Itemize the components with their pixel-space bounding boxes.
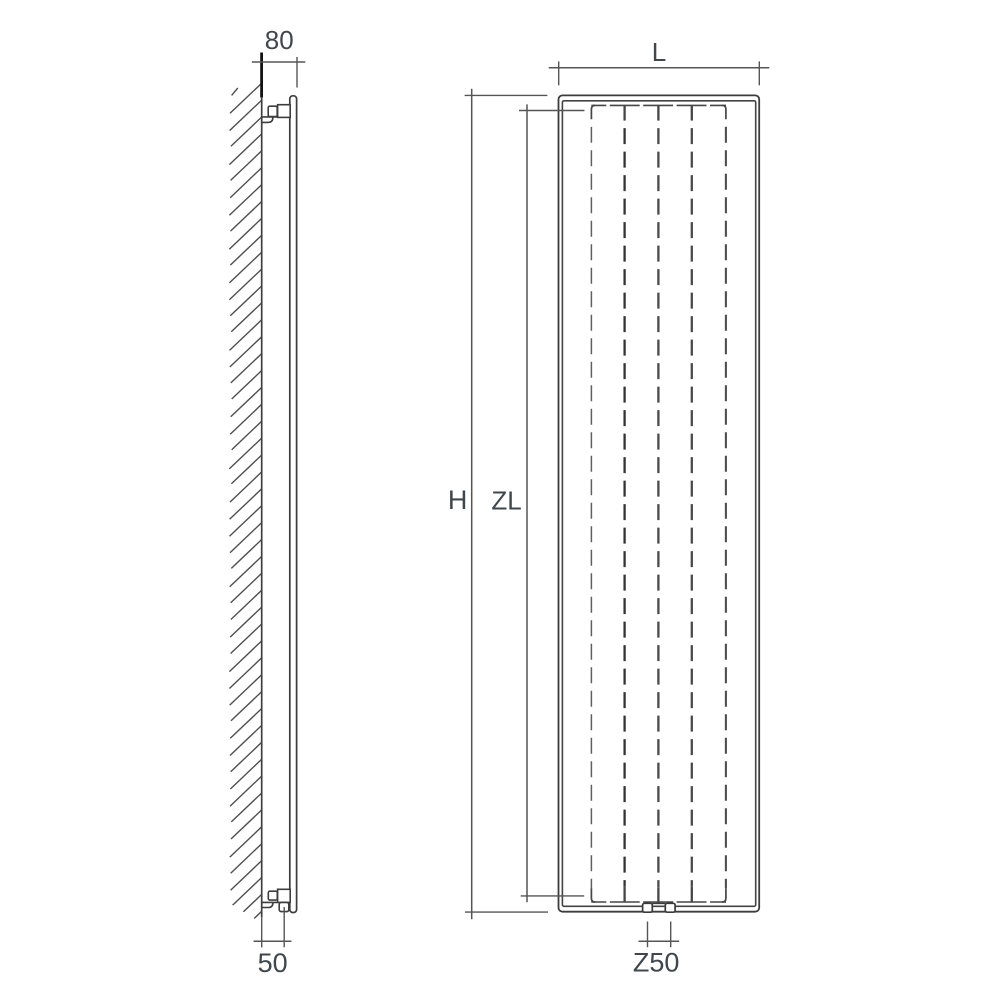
svg-text:Z50: Z50 xyxy=(633,948,680,978)
svg-text:50: 50 xyxy=(258,948,288,978)
svg-text:80: 80 xyxy=(265,25,294,55)
svg-text:ZL: ZL xyxy=(491,485,521,515)
svg-text:H: H xyxy=(448,485,468,515)
svg-text:L: L xyxy=(652,37,666,67)
